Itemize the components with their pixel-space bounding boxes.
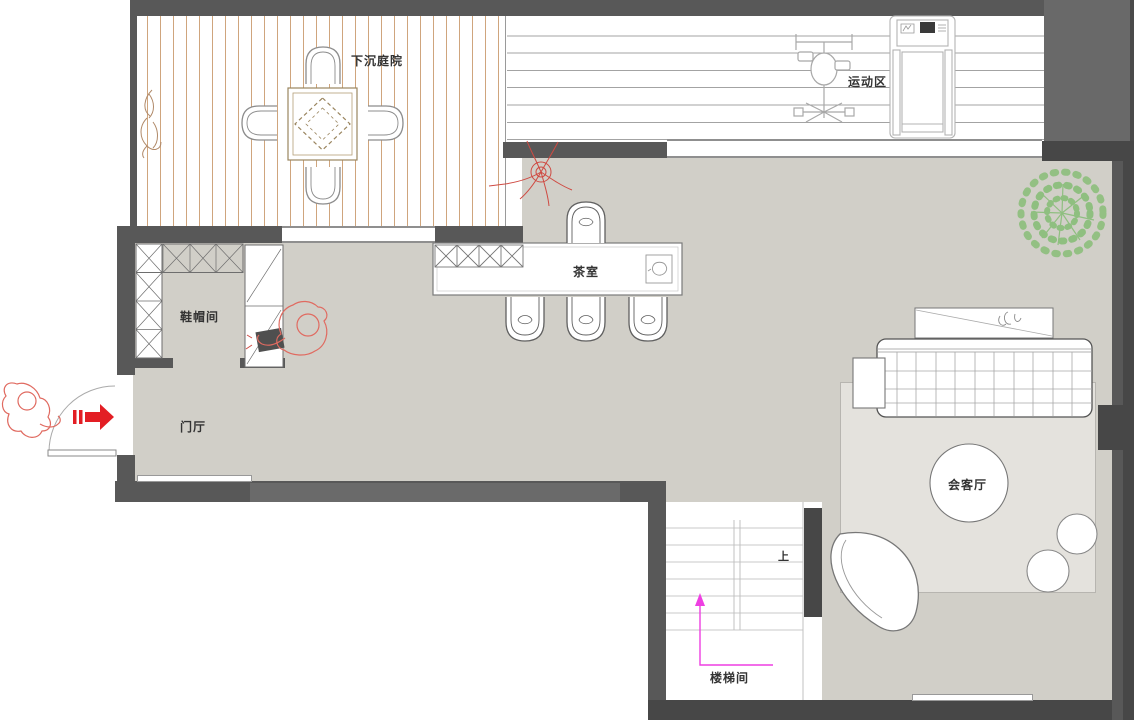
entry-door [48, 386, 116, 456]
wall-cloak-bottom-2 [240, 358, 285, 368]
room-label-exercise: 运动区 [848, 73, 887, 90]
wall-courtyard-left [130, 0, 137, 228]
floor-plan: 下沉庭院 运动区 茶室 鞋帽间 门厅 楼梯间 会客厅 上 [0, 0, 1134, 720]
person-sketch-entry [2, 383, 60, 437]
wall-right-pier [1098, 405, 1123, 450]
room-label-stairwell: 楼梯间 [710, 669, 749, 686]
wall-bottom [648, 700, 1134, 720]
room-label-reception: 会客厅 [948, 476, 987, 493]
window-exercise [667, 139, 1042, 158]
wall-right-outer [1123, 161, 1134, 720]
courtyard-deck-floor [135, 16, 506, 227]
wall-stair-left [648, 502, 666, 720]
wall-strip-top-right [1042, 141, 1134, 161]
wall-courtyard-bottom-1 [117, 226, 282, 243]
wall-top [130, 0, 1044, 16]
wall-hall-bottom-mid [250, 483, 620, 502]
wall-mass-top-right [1044, 0, 1134, 141]
exercise-area-floor [507, 19, 1044, 140]
room-label-cloakroom: 鞋帽间 [180, 308, 219, 325]
wall-left-upper [117, 228, 135, 375]
room-label-courtyard: 下沉庭院 [351, 52, 403, 69]
window-courtyard [282, 226, 435, 243]
window-sill-bottom [912, 694, 1033, 701]
room-label-tea: 茶室 [573, 263, 599, 280]
wall-cloak-bottom-1 [117, 358, 173, 368]
entry-arrow [73, 404, 114, 430]
wall-courtyard-bottom-2 [435, 226, 523, 243]
room-label-hall: 门厅 [180, 418, 206, 435]
wall-stair-right-pier [804, 508, 822, 617]
stairs-up-label: 上 [778, 548, 789, 564]
hall-floor [133, 243, 522, 481]
wall-tea-top [503, 142, 667, 158]
window-sill-hall [137, 475, 252, 482]
